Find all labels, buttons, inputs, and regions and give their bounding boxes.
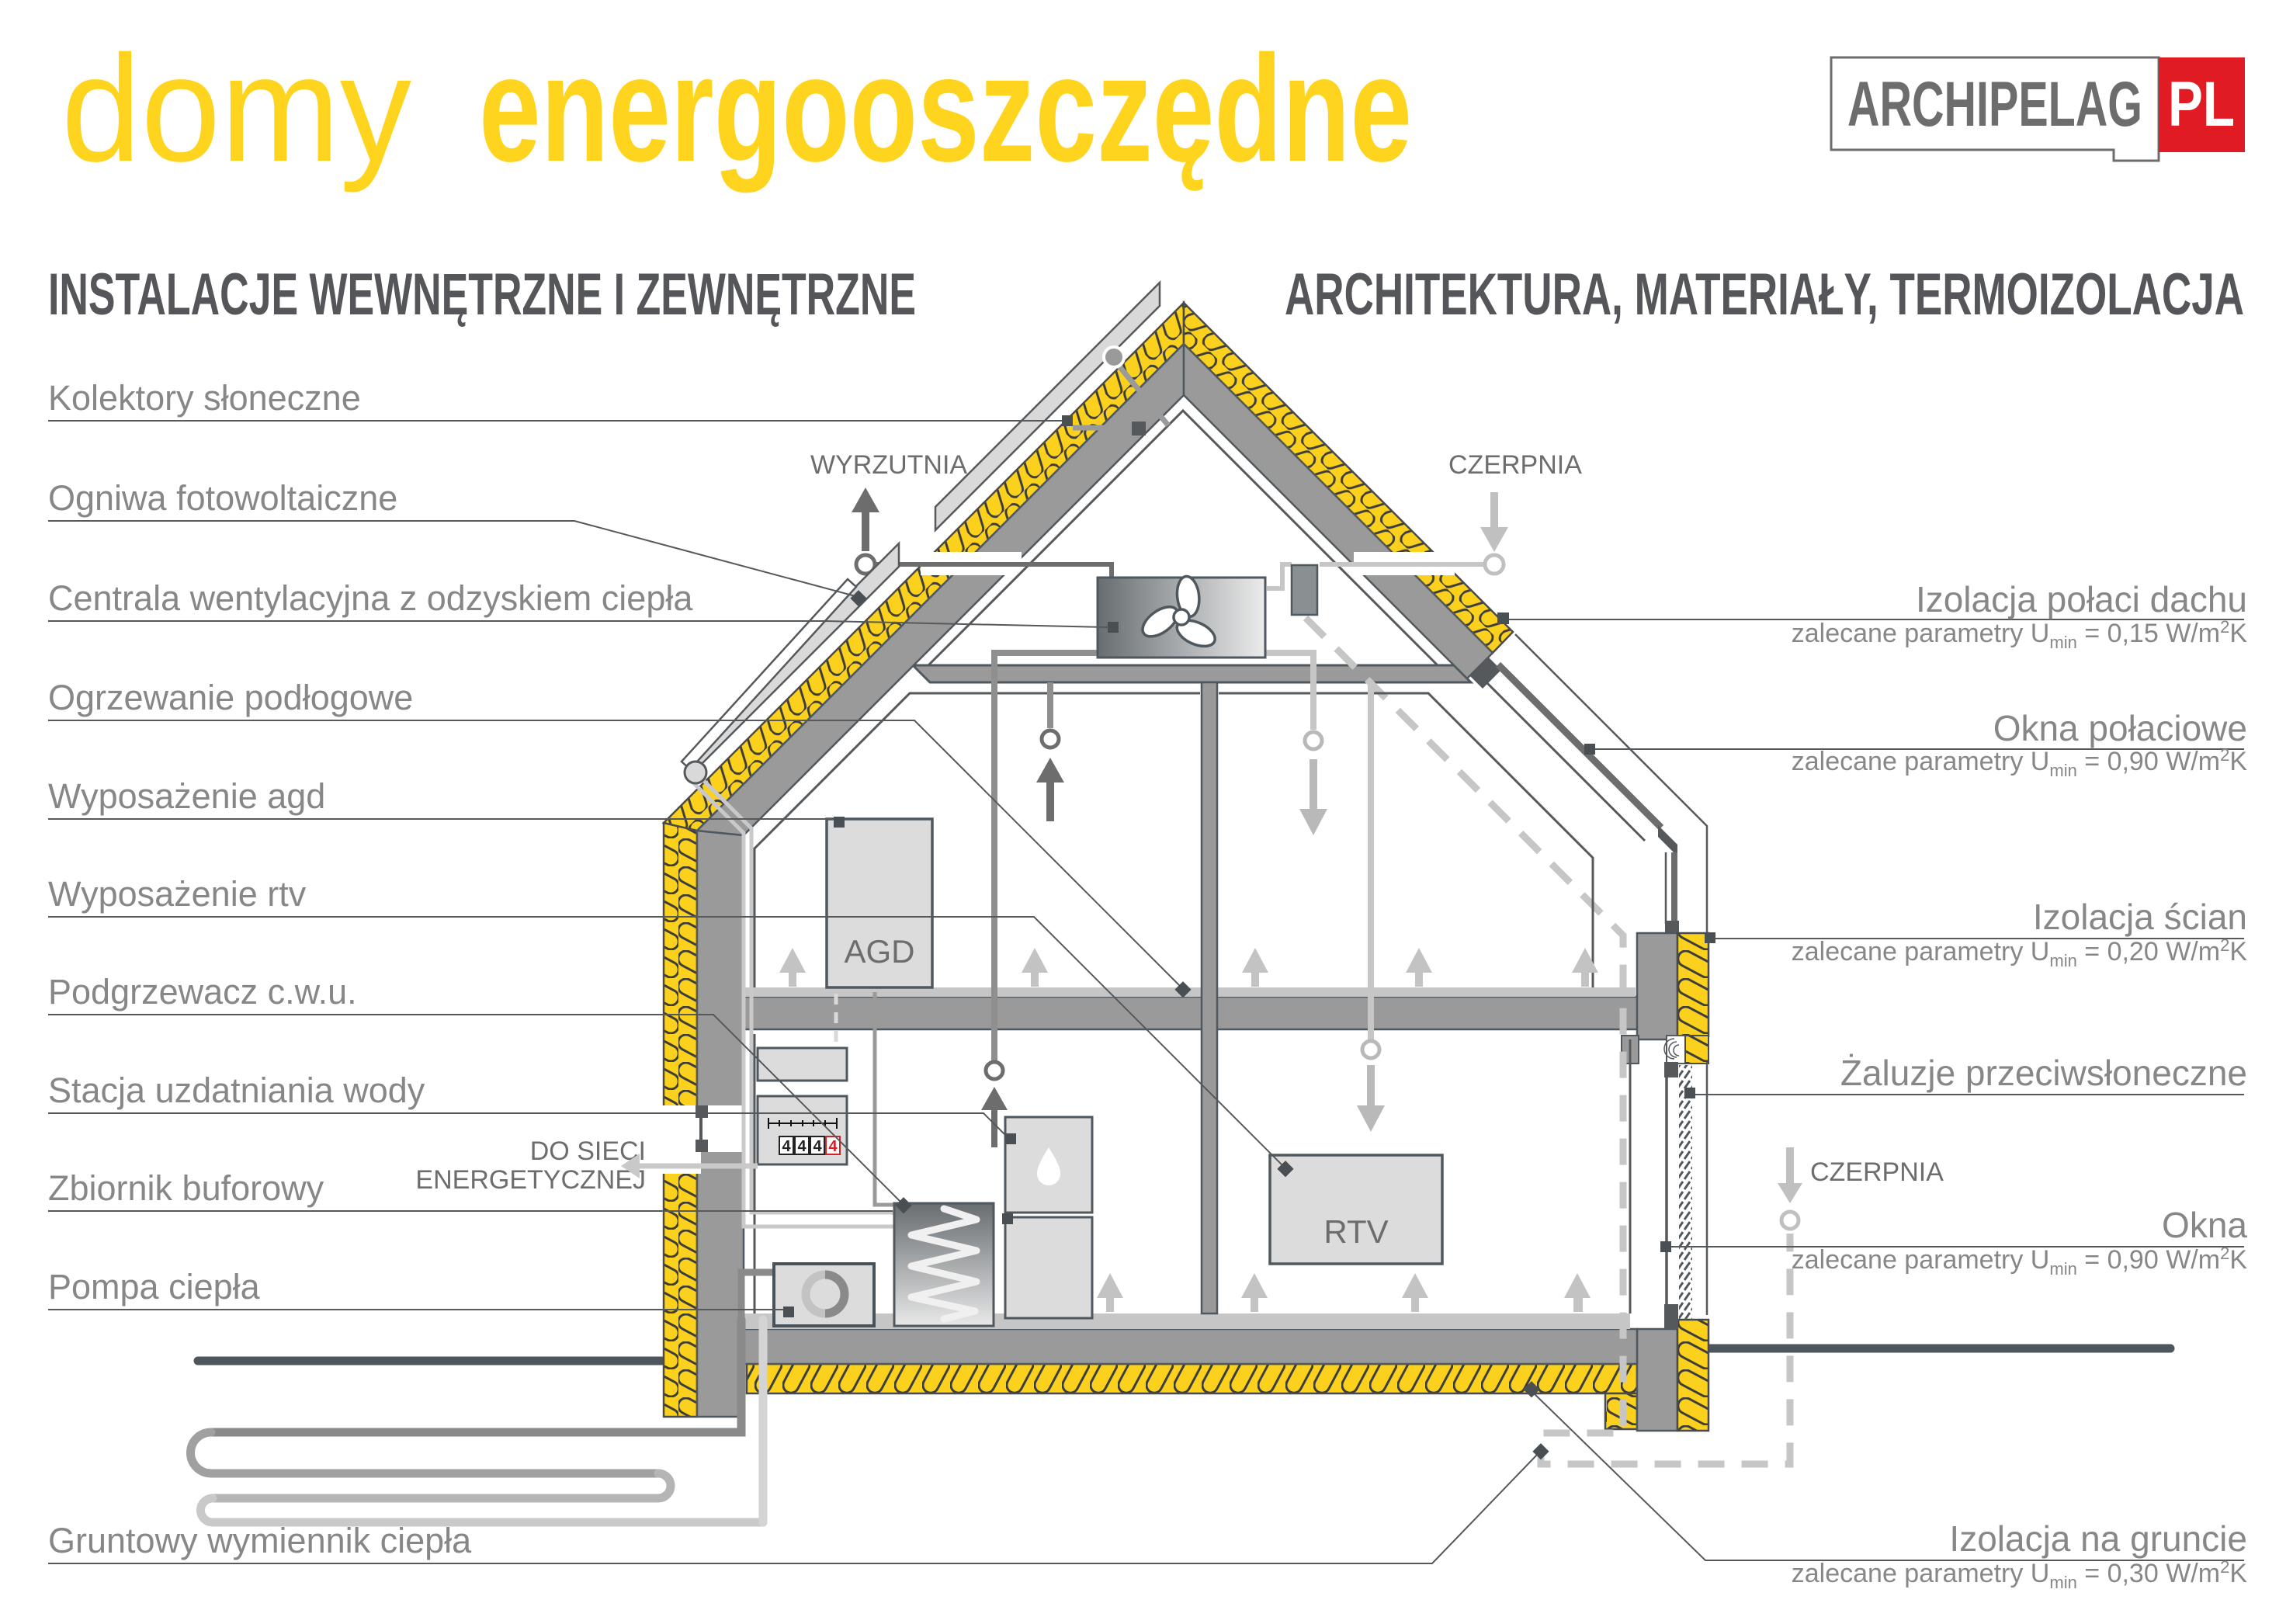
svg-text:Izolacja na gruncie: Izolacja na gruncie: [1949, 1518, 2247, 1559]
svg-text:Kolektory słoneczne: Kolektory słoneczne: [48, 378, 361, 418]
svg-text:Wyposażenie rtv: Wyposażenie rtv: [48, 874, 307, 914]
svg-text:4: 4: [813, 1138, 822, 1155]
svg-text:Izolacja połaci dachu: Izolacja połaci dachu: [1916, 579, 2247, 619]
svg-text:Stacja uzdatniania wody: Stacja uzdatniania wody: [48, 1071, 425, 1110]
svg-text:Gruntowy wymiennik ciepła: Gruntowy wymiennik ciepła: [48, 1521, 472, 1560]
svg-text:ARCHITEKTURA, MATERIAŁY, TERMO: ARCHITEKTURA, MATERIAŁY, TERMOIZOLACJA: [1285, 262, 2244, 328]
svg-text:CZERPNIA: CZERPNIA: [1810, 1157, 1944, 1187]
svg-text:domy: domy: [61, 24, 411, 193]
svg-text:ARCHIPELAG: ARCHIPELAG: [1847, 69, 2142, 140]
svg-text:zalecane parametry Umin = 0,30: zalecane parametry Umin = 0,30 W/m2K: [1792, 1557, 2248, 1592]
svg-text:Pompa ciepła: Pompa ciepła: [48, 1267, 261, 1306]
svg-text:PL: PL: [2168, 69, 2235, 140]
svg-text:Żaluzje przeciwsłoneczne: Żaluzje przeciwsłoneczne: [1840, 1053, 2247, 1093]
svg-text:Podgrzewacz c.w.u.: Podgrzewacz c.w.u.: [48, 972, 357, 1012]
svg-text:Okna: Okna: [2162, 1205, 2247, 1245]
svg-text:4: 4: [782, 1138, 791, 1155]
svg-text:ENERGETYCZNEJ: ENERGETYCZNEJ: [415, 1165, 646, 1195]
svg-text:WYRZUTNIA: WYRZUTNIA: [810, 450, 967, 480]
svg-text:Wyposażenie agd: Wyposażenie agd: [48, 776, 325, 816]
svg-text:CZERPNIA: CZERPNIA: [1448, 450, 1582, 480]
svg-text:AGD: AGD: [844, 933, 914, 970]
svg-text:4: 4: [797, 1138, 807, 1155]
svg-text:Centrala wentylacyjna z odzysk: Centrala wentylacyjna z odzyskiem ciepła: [48, 578, 693, 618]
svg-text:zalecane parametry Umin = 0,20: zalecane parametry Umin = 0,20 W/m2K: [1792, 935, 2248, 970]
svg-text:zalecane parametry Umin = 0,90: zalecane parametry Umin = 0,90 W/m2K: [1792, 745, 2248, 780]
svg-text:zalecane parametry Umin = 0,15: zalecane parametry Umin = 0,15 W/m2K: [1792, 617, 2248, 652]
svg-text:Ogniwa fotowoltaiczne: Ogniwa fotowoltaiczne: [48, 478, 397, 518]
svg-text:energooszczędne: energooszczędne: [479, 24, 1412, 193]
svg-text:Izolacja ścian: Izolacja ścian: [2033, 897, 2247, 937]
svg-text:Zbiornik buforowy: Zbiornik buforowy: [48, 1168, 324, 1208]
svg-text:RTV: RTV: [1323, 1213, 1388, 1250]
svg-text:INSTALACJE WEWNĘTRZNE I ZEWNĘT: INSTALACJE WEWNĘTRZNE I ZEWNĘTRZNE: [48, 262, 916, 328]
svg-text:Okna połaciowe: Okna połaciowe: [1993, 708, 2247, 748]
svg-text:4: 4: [828, 1138, 838, 1155]
svg-text:zalecane parametry Umin = 0,90: zalecane parametry Umin = 0,90 W/m2K: [1792, 1244, 2248, 1279]
svg-text:Ogrzewanie podłogowe: Ogrzewanie podłogowe: [48, 678, 413, 717]
